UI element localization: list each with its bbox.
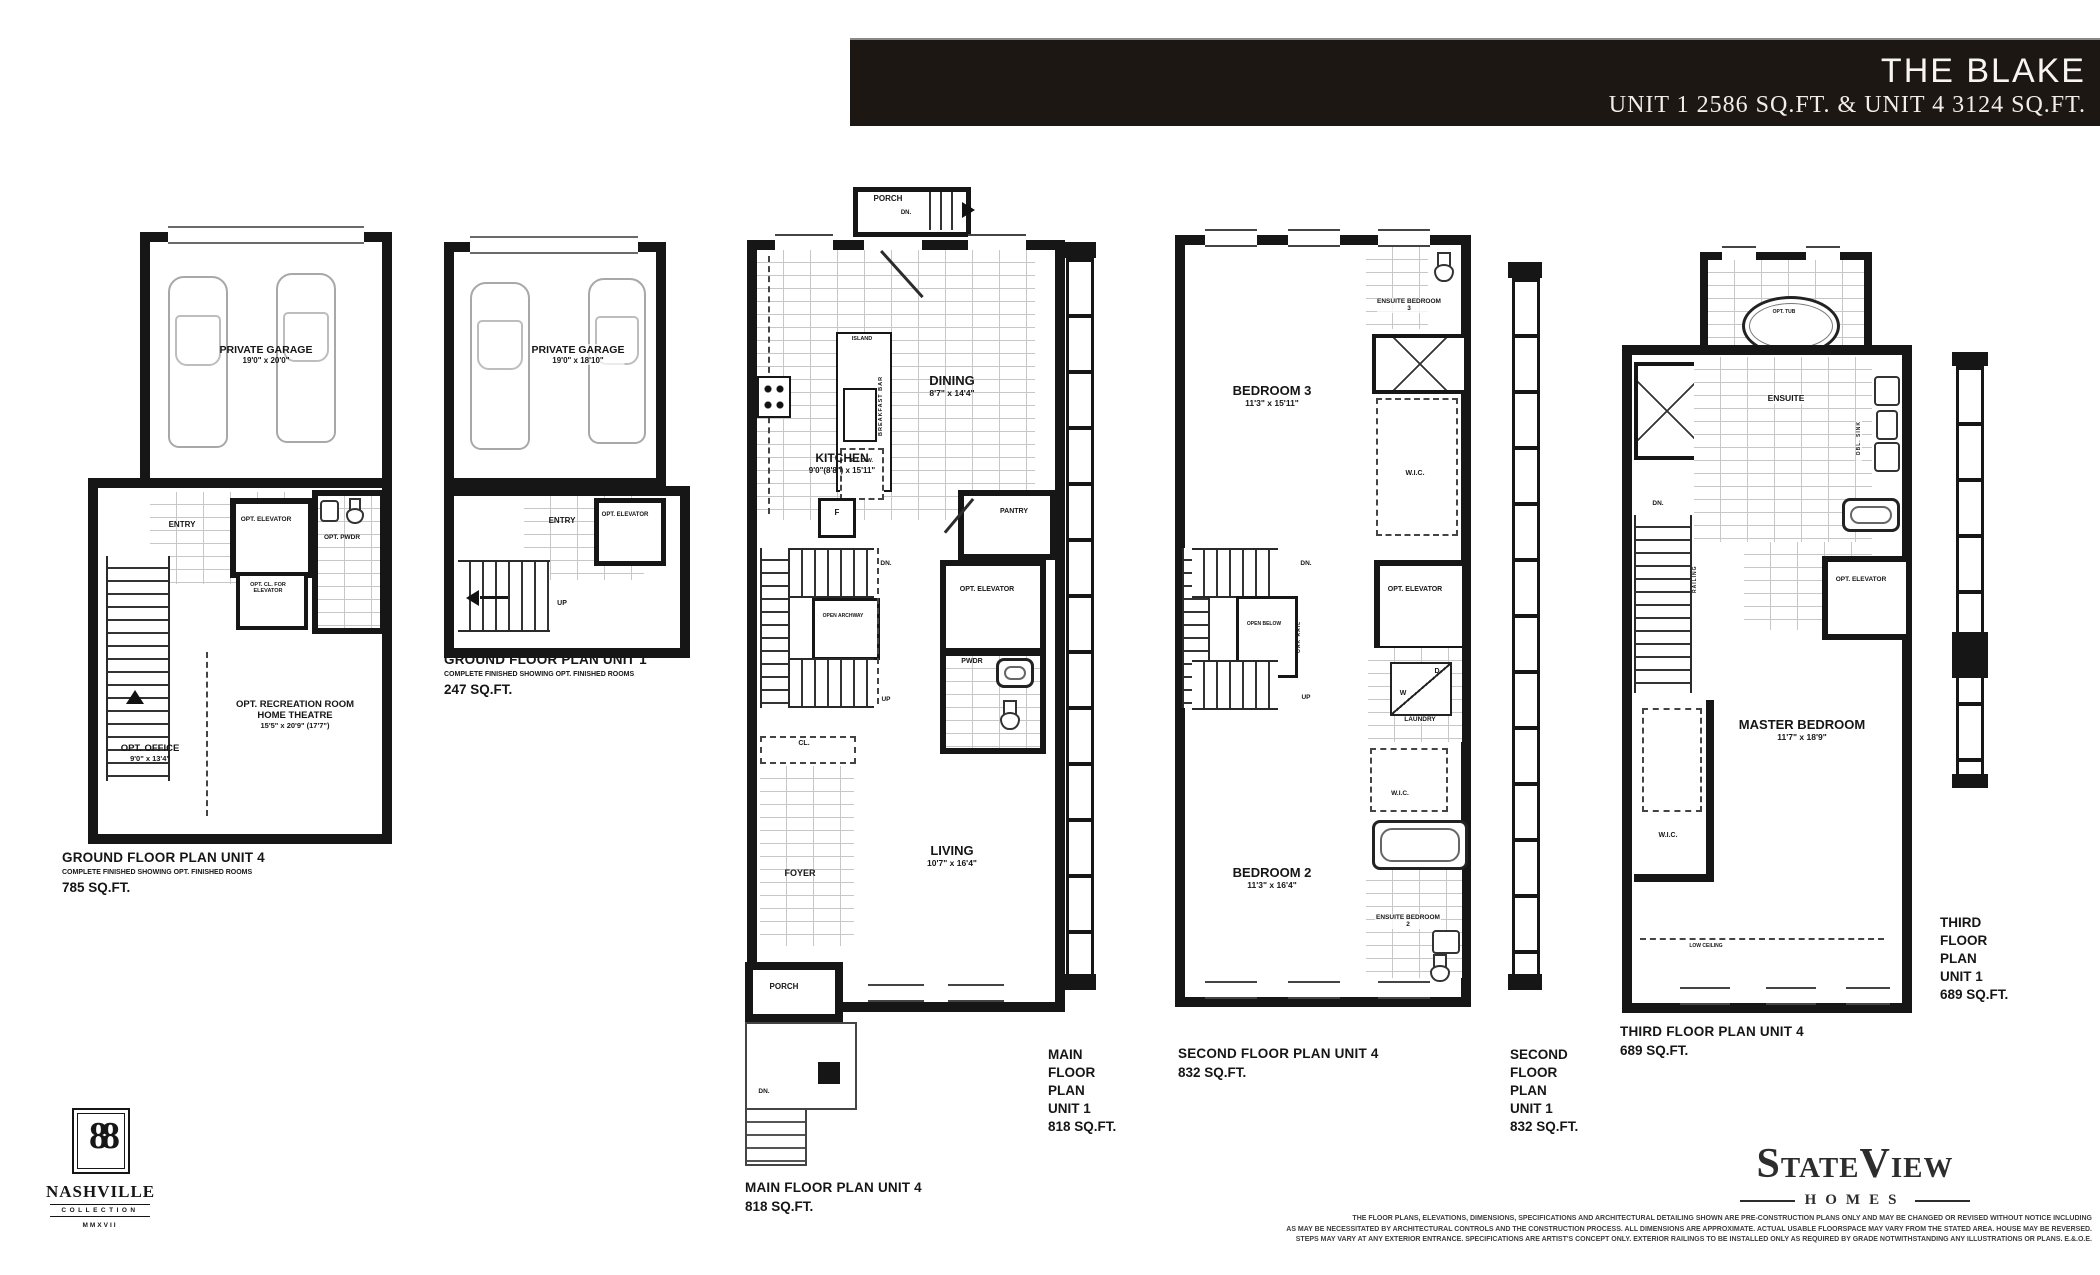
g4-rec-label: OPT. RECREATION ROOM HOME THEATRE 15'5" … [235,700,355,730]
mf-porch-bottom-label: PORCH [770,982,799,991]
sf-linen-closet [1372,334,1468,394]
tf-vanity-cabinet [1876,410,1898,440]
g4-garage-dims: 19'0" x 20'0" [220,356,313,365]
g1-opt-elevator-room [594,498,666,566]
mf-dn-bottom-label: DN. [758,1088,769,1095]
g4-office-divider [206,652,208,816]
sf-strip-cap-top [1508,262,1542,278]
sf-washer-label: W [1400,690,1407,698]
disclaimer-line-1: THE FLOOR PLANS, ELEVATIONS, DIMENSIONS,… [1150,1214,2092,1225]
mf-exterior-steps [745,1108,807,1166]
g4-caption-note: COMPLETE FINISHED SHOWING OPT. FINISHED … [62,869,362,878]
tf-wic-wall-right [1706,700,1714,882]
floorplan-sheet: THE BLAKE UNIT 1 2586 SQ.FT. & UNIT 4 31… [0,0,2100,1275]
sf-wic2-label: W.I.C. [1391,790,1409,797]
tf-caption-unit4: THIRD FLOOR PLAN UNIT 4 689 SQ.FT. [1620,1024,1880,1060]
sf-dn-label: DN. [1300,560,1311,567]
mf-strip-cap-top [1062,242,1096,258]
mf-kitchen-dining-floor [757,250,1035,520]
page-title: THE BLAKE [886,52,2086,91]
stateview-rule-left [1740,1200,1795,1202]
g4-caption-title: GROUND FLOOR PLAN UNIT 4 [62,850,362,867]
tf-dbl-sink-label: DBL. SINK [1856,412,1862,464]
g1-caption: GROUND FLOOR PLAN UNIT 1 COMPLETE FINISH… [444,652,744,699]
g4-stairs-arrow [126,690,144,704]
legal-disclaimer: THE FLOOR PLANS, ELEVATIONS, DIMENSIONS,… [1150,1214,2092,1246]
mf-stairs-left-flight [760,548,790,708]
sf-open-below-label: OPEN BELOW [1241,622,1287,628]
sf-caption-unit1-line5: 832 SQ.FT. [1510,1118,1578,1136]
tf-unit1-strip [1956,366,1984,774]
mf-dining-label: DINING 8'7" x 14'4" [929,374,975,399]
g1-entry-label: ENTRY [549,516,576,525]
g4-opt-pwdr-label: OPT. PWDR [322,534,362,541]
mf-kitchen-name: KITCHEN [809,452,875,466]
mf-unit1-strip [1066,258,1094,974]
sf-ensuite2-sink [1432,930,1460,954]
tf-caption-unit1-line2: FLOOR [1940,932,2008,950]
mf-pwdr-sink [996,658,1034,688]
g4-opt-closet-room [236,572,308,630]
mf-living-label: LIVING 10'7" x 16'4" [927,844,977,869]
mf-kitchen-label: KITCHEN 9'0"(8'8") x 15'11" [809,452,875,475]
sf-wic2-shelving [1370,748,1448,812]
sf-dryer-label: D [1434,668,1439,676]
sf-strip-cap-bottom [1508,974,1542,990]
sf-caption-unit1-line2: FLOOR [1510,1064,1578,1082]
mf-caption-unit1-line4: UNIT 1 [1048,1100,1116,1118]
tf-caption-unit4-area: 689 SQ.FT. [1620,1043,1880,1060]
sf-window-bottom-2 [1288,981,1340,999]
sf-bedroom3-label: BEDROOM 3 11'3" x 15'11" [1233,384,1312,409]
sf-ensuite3-label: ENSUITE BEDROOM 3 [1377,298,1441,313]
sf-wic1-shelving [1376,398,1458,536]
sf-bedroom3-dims: 11'3" x 15'11" [1233,399,1312,409]
g4-opt-elevator-room [230,498,314,578]
mf-caption-unit4: MAIN FLOOR PLAN UNIT 4 818 SQ.FT. [745,1180,985,1216]
sf-window-top-3 [1378,229,1430,247]
mf-porch-bottom [745,962,843,1022]
tf-stairs [1634,515,1692,693]
mf-caption-unit1-line5: 818 SQ.FT. [1048,1118,1116,1136]
sf-bedroom2-label: BEDROOM 2 11'3" x 16'4" [1233,866,1312,891]
sf-caption-unit1-line4: UNIT 1 [1510,1100,1578,1118]
sf-bedroom2-dims: 11'3" x 16'4" [1233,881,1312,891]
tf-window-bottom-2 [1766,987,1816,1005]
g1-car-left [470,282,530,450]
tf-water-closet-fixture [1842,498,1900,532]
tf-sink-1 [1874,376,1900,406]
mf-opt-elevator-room [940,560,1046,654]
stateview-homes-row: HOMES [1740,1192,1970,1209]
tf-caption-unit1-line5: 689 SQ.FT. [1940,986,2008,1004]
mf-stairs-lower [790,658,874,708]
sf-window-bottom-1 [1205,981,1257,999]
sf-window-bottom-3 [1378,981,1430,999]
sf-up-label: UP [1301,694,1310,701]
sf-ensuite2-tub [1372,820,1468,870]
g1-garage-label: PRIVATE GARAGE 19'0" x 18'10" [532,344,625,365]
g4-caption-area: 785 SQ.FT. [62,880,362,897]
sf-oak-rail-label: OAK RAIL [1296,606,1302,668]
mf-opt-elevator-label: OPT. ELEVATOR [957,586,1017,594]
mf-caption-unit1-line1: MAIN [1048,1046,1116,1064]
g4-garage-door [168,226,364,244]
tf-master-name: MASTER BEDROOM [1739,718,1865,733]
sf-window-top-2 [1288,229,1340,247]
stateview-rule-right [1915,1200,1970,1202]
stateview-name: StateView [1690,1140,2020,1188]
mf-up-label: UP [881,696,890,703]
g4-office-dims: 9'0" x 13'4" [121,755,180,764]
sf-ensuite2-toilet [1430,954,1450,982]
tf-caption-unit4-title: THIRD FLOOR PLAN UNIT 4 [1620,1024,1880,1041]
mf-living-dims: 10'7" x 16'4" [927,859,977,869]
mf-porch-post [818,1062,840,1084]
tf-dn-label: DN. [1652,500,1663,507]
sf-ensuite2-label: ENSUITE BEDROOM 2 [1375,914,1441,929]
g1-stairs-arrow [466,590,479,606]
g4-office-label: OPT. OFFICE 9'0" x 13'4" [121,744,180,764]
g1-opt-elevator-label: OPT. ELEVATOR [601,512,649,519]
tf-strip-block [1952,632,1988,678]
g4-pwdr-toilet [346,498,364,524]
sf-caption-unit1: SECOND FLOOR PLAN UNIT 1 832 SQ.FT. [1510,1046,1578,1136]
tf-window-bottom-3 [1846,987,1890,1005]
nashville-logo-box: 88 [72,1108,130,1174]
g1-garage-name: PRIVATE GARAGE [532,344,625,356]
g1-stairs-arrow-stem [480,596,508,599]
sf-bedroom2-name: BEDROOM 2 [1233,866,1312,881]
sf-caption-unit4: SECOND FLOOR PLAN UNIT 4 832 SQ.FT. [1178,1046,1438,1082]
tf-opt-elevator-room [1822,556,1912,640]
sf-ensuite3-floor [1366,247,1428,329]
sf-opt-elevator-label: OPT. ELEVATOR [1386,586,1444,594]
g1-caption-area: 247 SQ.FT. [444,682,744,699]
g1-caption-note: COMPLETE FINISHED SHOWING OPT. FINISHED … [444,671,744,680]
mf-caption-unit1: MAIN FLOOR PLAN UNIT 1 818 SQ.FT. [1048,1046,1116,1136]
mf-pwdr-label: PWDR [961,658,982,666]
tf-strip-cap-top [1952,352,1988,366]
mf-living-name: LIVING [927,844,977,859]
mf-fridge-label: F [835,508,840,517]
tf-opt-elevator-label: OPT. ELEVATOR [1833,576,1889,583]
g4-opt-elevator-label: OPT. ELEVATOR [239,516,293,523]
sf-opt-elevator-room [1374,560,1468,652]
tf-wic-shelving [1642,708,1702,812]
mf-kitchen-dims: 9'0"(8'8") x 15'11" [809,466,875,475]
mf-closet-label: CL. [798,740,809,748]
g4-garage-label: PRIVATE GARAGE 19'0" x 20'0" [220,344,313,365]
page-subtitle: UNIT 1 2586 SQ.FT. & UNIT 4 3124 SQ.FT. [886,92,2086,119]
tf-shower [1634,362,1700,460]
disclaimer-line-3: STEPS MAY VARY AT ANY EXTERIOR ENTRANCE.… [1150,1235,2092,1246]
g4-rec-name: OPT. RECREATION ROOM HOME THEATRE [235,700,355,722]
sf-laundry-label: LAUNDRY [1404,716,1436,723]
mf-porch-arrow [962,202,975,218]
mf-island-cooktop [843,388,877,442]
g1-garage-dims: 19'0" x 18'10" [532,356,625,365]
tf-caption-unit1-line1: THIRD [1940,914,2008,932]
mf-range [757,376,791,418]
nashville-monogram: 88 [74,1114,128,1158]
tf-strip-cap-bottom [1952,774,1988,788]
mf-foyer-label: FOYER [784,868,815,878]
sf-ensuite3-toilet [1434,252,1454,282]
sf-caption-unit1-line3: PLAN [1510,1082,1578,1100]
g4-opt-closet-label: OPT. CL. FOR ELEVATOR [242,582,294,595]
g4-caption: GROUND FLOOR PLAN UNIT 4 COMPLETE FINISH… [62,850,362,897]
mf-dn-label: DN. [880,560,891,567]
mf-caption-unit4-title: MAIN FLOOR PLAN UNIT 4 [745,1180,985,1197]
mf-island-label: ISLAND [852,336,872,342]
stateview-homes: HOMES [1805,1192,1906,1209]
mf-caption-unit4-area: 818 SQ.FT. [745,1199,985,1216]
nashville-collection: COLLECTION [50,1204,150,1217]
mf-caption-unit1-line3: PLAN [1048,1082,1116,1100]
sf-bedroom3-name: BEDROOM 3 [1233,384,1312,399]
g1-caption-title: GROUND FLOOR PLAN UNIT 1 [444,652,744,669]
mf-window-bottom-right [948,984,1004,1002]
mf-porch-outline [745,1022,857,1110]
mf-pantry-label: PANTRY [1000,508,1028,516]
tf-low-ceiling-bottom-label: LOW CEILING [1689,944,1722,950]
tf-master-dims: 11'7" x 18'9" [1739,733,1865,743]
tf-master-label: MASTER BEDROOM 11'7" x 18'9" [1739,718,1865,743]
sf-caption-unit4-title: SECOND FLOOR PLAN UNIT 4 [1178,1046,1438,1063]
tf-window-bottom-1 [1680,987,1730,1005]
mf-window-bottom-left [868,984,924,1002]
g4-pwdr-sink [320,500,339,522]
mf-foyer-floor [760,766,854,946]
tf-railing-label: RAILING [1692,548,1698,610]
sf-wic1-label: W.I.C. [1405,470,1424,478]
sf-stairs-lower [1192,660,1278,710]
g1-up-label: UP [557,600,567,608]
nashville-name: NASHVILLE [46,1182,154,1202]
mf-dining-dims: 8'7" x 14'4" [929,389,975,399]
g4-entry-label: ENTRY [169,520,196,529]
mf-pwdr-toilet [1000,700,1020,730]
tf-sink-2 [1874,442,1900,472]
tf-wic-label: W.I.C. [1658,832,1677,840]
mf-rail-dashed [877,548,879,704]
tf-caption-unit1-line4: UNIT 1 [1940,968,2008,986]
g4-rec-dims: 15'5" x 20'9" (17'7") [235,722,355,731]
nashville-year: MMXVII [50,1222,150,1229]
sf-caption-unit4-area: 832 SQ.FT. [1178,1065,1438,1082]
g1-garage-door [470,236,638,254]
tf-ensuite-label: ENSUITE [1768,394,1805,404]
mf-dining-name: DINING [929,374,975,389]
tf-wic-wall-bottom [1634,874,1714,882]
mf-caption-unit1-line2: FLOOR [1048,1064,1116,1082]
sf-stairs-upper [1192,548,1278,598]
g4-garage-name: PRIVATE GARAGE [220,344,313,356]
mf-open-archway-box [812,598,880,660]
tf-low-ceiling-bottom-line [1640,938,1884,940]
tf-opt-tub-label: OPT. TUB [1767,310,1801,316]
sf-washer-dryer [1390,662,1452,716]
mf-strip-cap-bottom [1062,974,1096,990]
mf-porch-top-label: PORCH [874,194,903,203]
mf-fridge [818,498,856,538]
header-band: THE BLAKE UNIT 1 2586 SQ.FT. & UNIT 4 31… [850,38,2100,126]
mf-stairs-upper [790,548,874,598]
mf-breakfast-bar-label: BREAKFAST BAR [878,356,884,456]
tf-caption-unit1: THIRD FLOOR PLAN UNIT 1 689 SQ.FT. [1940,914,2008,1004]
disclaimer-line-2: AS MAY BE NECESSITATED BY ARCHITECTURAL … [1150,1225,2092,1236]
tf-caption-unit1-line3: PLAN [1940,950,2008,968]
mf-porch-top-steps [920,192,962,230]
sf-caption-unit1-line1: SECOND [1510,1046,1578,1064]
sf-unit1-strip [1512,278,1540,974]
mf-open-archway-label: OPEN ARCHWAY [817,614,869,620]
sf-window-top-1 [1205,229,1257,247]
mf-dn-top-label: DN. [901,210,911,217]
